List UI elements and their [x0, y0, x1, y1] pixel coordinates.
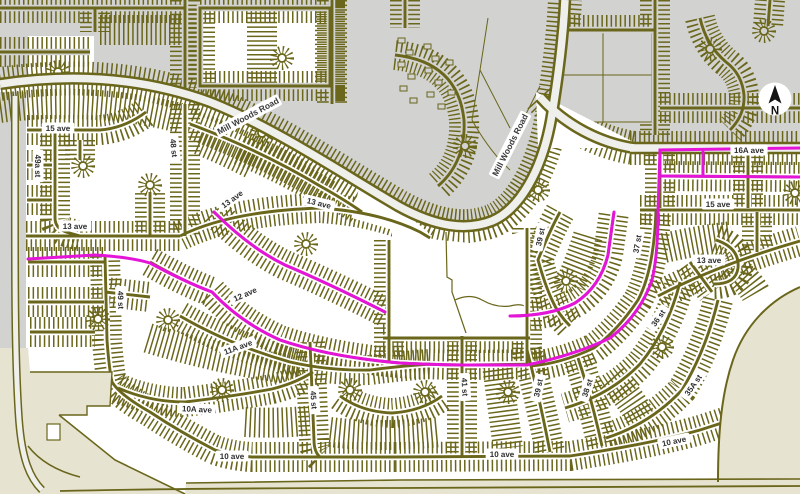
svg-text:16A ave: 16A ave — [734, 146, 765, 155]
svg-text:10 ave: 10 ave — [220, 452, 245, 461]
svg-text:15 ave: 15 ave — [706, 200, 731, 209]
svg-text:49a st: 49a st — [33, 155, 42, 178]
svg-text:10 ave: 10 ave — [490, 450, 515, 459]
svg-text:13 ave: 13 ave — [63, 222, 88, 231]
svg-text:45 st: 45 st — [308, 391, 318, 410]
svg-text:N: N — [771, 106, 779, 118]
svg-text:15 ave: 15 ave — [46, 124, 71, 133]
svg-text:10A ave: 10A ave — [182, 404, 213, 415]
svg-text:13 ave: 13 ave — [697, 256, 722, 265]
svg-text:49 st: 49 st — [116, 291, 126, 310]
svg-text:41 st: 41 st — [460, 378, 470, 397]
